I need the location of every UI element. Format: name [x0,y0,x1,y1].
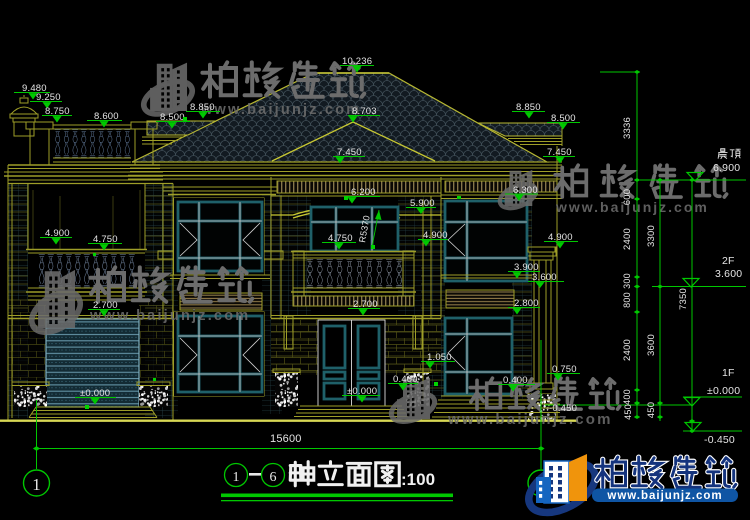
svg-text::100: :100 [401,470,435,489]
svg-text:2400: 2400 [622,339,633,361]
svg-text:7350: 7350 [678,288,689,310]
svg-text:1: 1 [233,470,240,485]
svg-text:600: 600 [622,189,633,205]
svg-text:1: 1 [32,475,41,494]
svg-text:400: 400 [622,389,632,405]
svg-text:3336: 3336 [622,117,633,139]
svg-text:www.baijunjz.com: www.baijunjz.com [447,411,613,428]
svg-text:3.600: 3.600 [715,268,742,280]
svg-text:300: 300 [622,273,632,289]
svg-text:3600: 3600 [646,334,657,356]
svg-text:450: 450 [623,404,633,420]
svg-text:3300: 3300 [646,225,657,247]
svg-text:www.baijunjz.com: www.baijunjz.com [606,490,722,502]
svg-text:±0.000: ±0.000 [707,385,740,397]
svg-text:6: 6 [270,470,277,485]
svg-text:800: 800 [622,292,632,308]
svg-text:6.900: 6.900 [713,162,740,174]
svg-text:www.baijunjz.com: www.baijunjz.com [200,102,361,118]
svg-text:-0.450: -0.450 [549,403,577,414]
svg-text:1F: 1F [722,367,735,379]
svg-text:2F: 2F [722,255,735,267]
svg-text:15600: 15600 [270,433,302,445]
svg-text:-0.450: -0.450 [704,434,735,446]
svg-text:2400: 2400 [622,228,633,250]
svg-text:450: 450 [646,402,657,418]
